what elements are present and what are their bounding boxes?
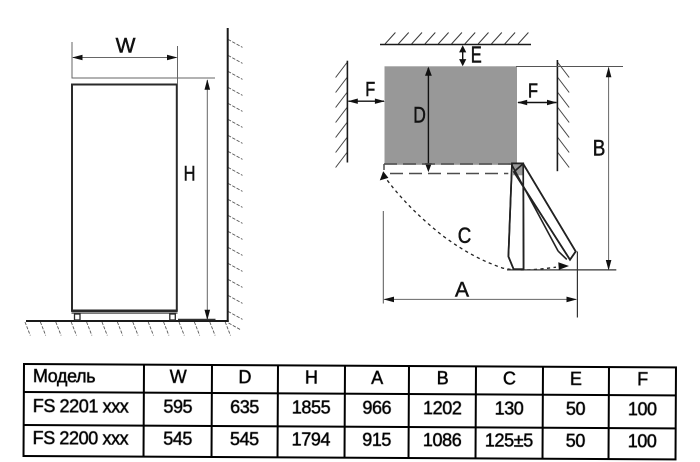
svg-text:F: F <box>365 79 375 101</box>
svg-text:H: H <box>184 163 196 186</box>
svg-text:W: W <box>116 35 136 58</box>
svg-text:F: F <box>528 81 538 103</box>
svg-text:D: D <box>413 103 426 128</box>
svg-text:A: A <box>455 279 469 302</box>
svg-text:E: E <box>471 42 482 68</box>
svg-text:C: C <box>458 223 472 248</box>
svg-text:B: B <box>593 135 606 160</box>
